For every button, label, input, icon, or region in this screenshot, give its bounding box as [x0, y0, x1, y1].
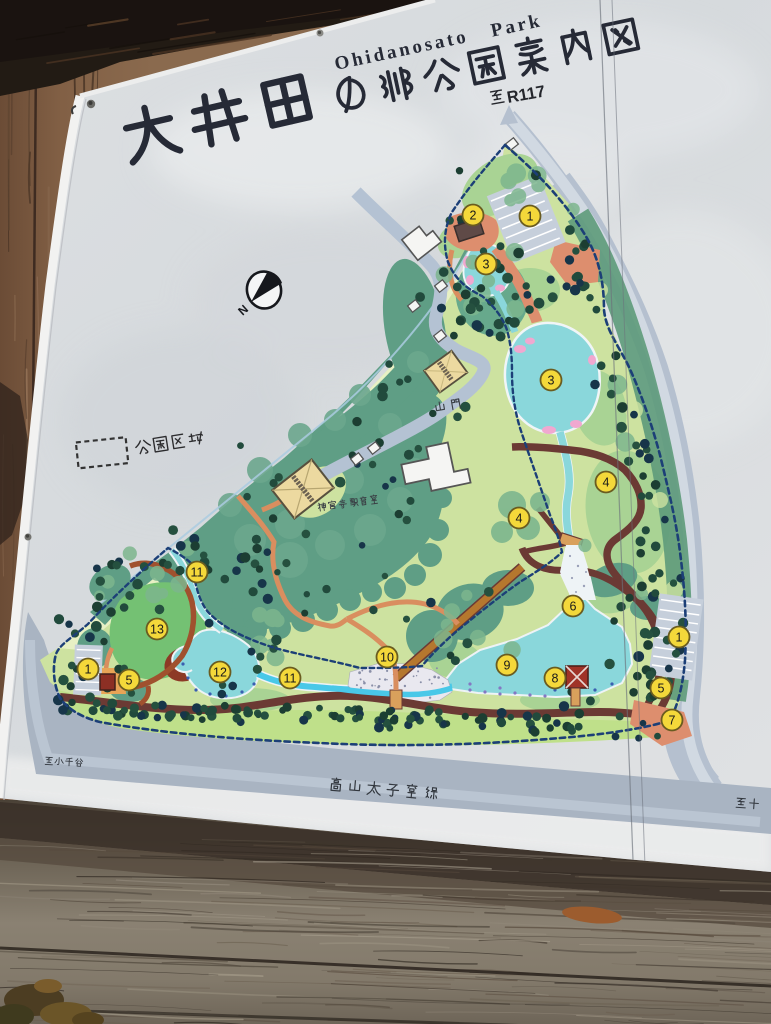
svg-text:4: 4: [516, 512, 523, 526]
svg-text:7: 7: [669, 714, 676, 728]
svg-text:11: 11: [191, 566, 204, 580]
svg-text:9: 9: [504, 659, 511, 673]
svg-text:4: 4: [603, 476, 610, 490]
svg-text:12: 12: [213, 666, 227, 680]
svg-text:13: 13: [150, 623, 164, 637]
svg-text:8: 8: [552, 672, 559, 686]
svg-text:5: 5: [126, 674, 133, 688]
svg-text:5: 5: [658, 682, 665, 696]
svg-text:1: 1: [85, 663, 92, 677]
svg-text:10: 10: [380, 651, 394, 665]
svg-text:6: 6: [570, 600, 577, 614]
svg-text:1: 1: [676, 631, 683, 645]
svg-text:3: 3: [483, 258, 490, 272]
svg-text:2: 2: [470, 209, 477, 223]
svg-text:3: 3: [548, 374, 555, 388]
svg-text:11: 11: [284, 672, 297, 686]
svg-text:1: 1: [527, 210, 534, 224]
